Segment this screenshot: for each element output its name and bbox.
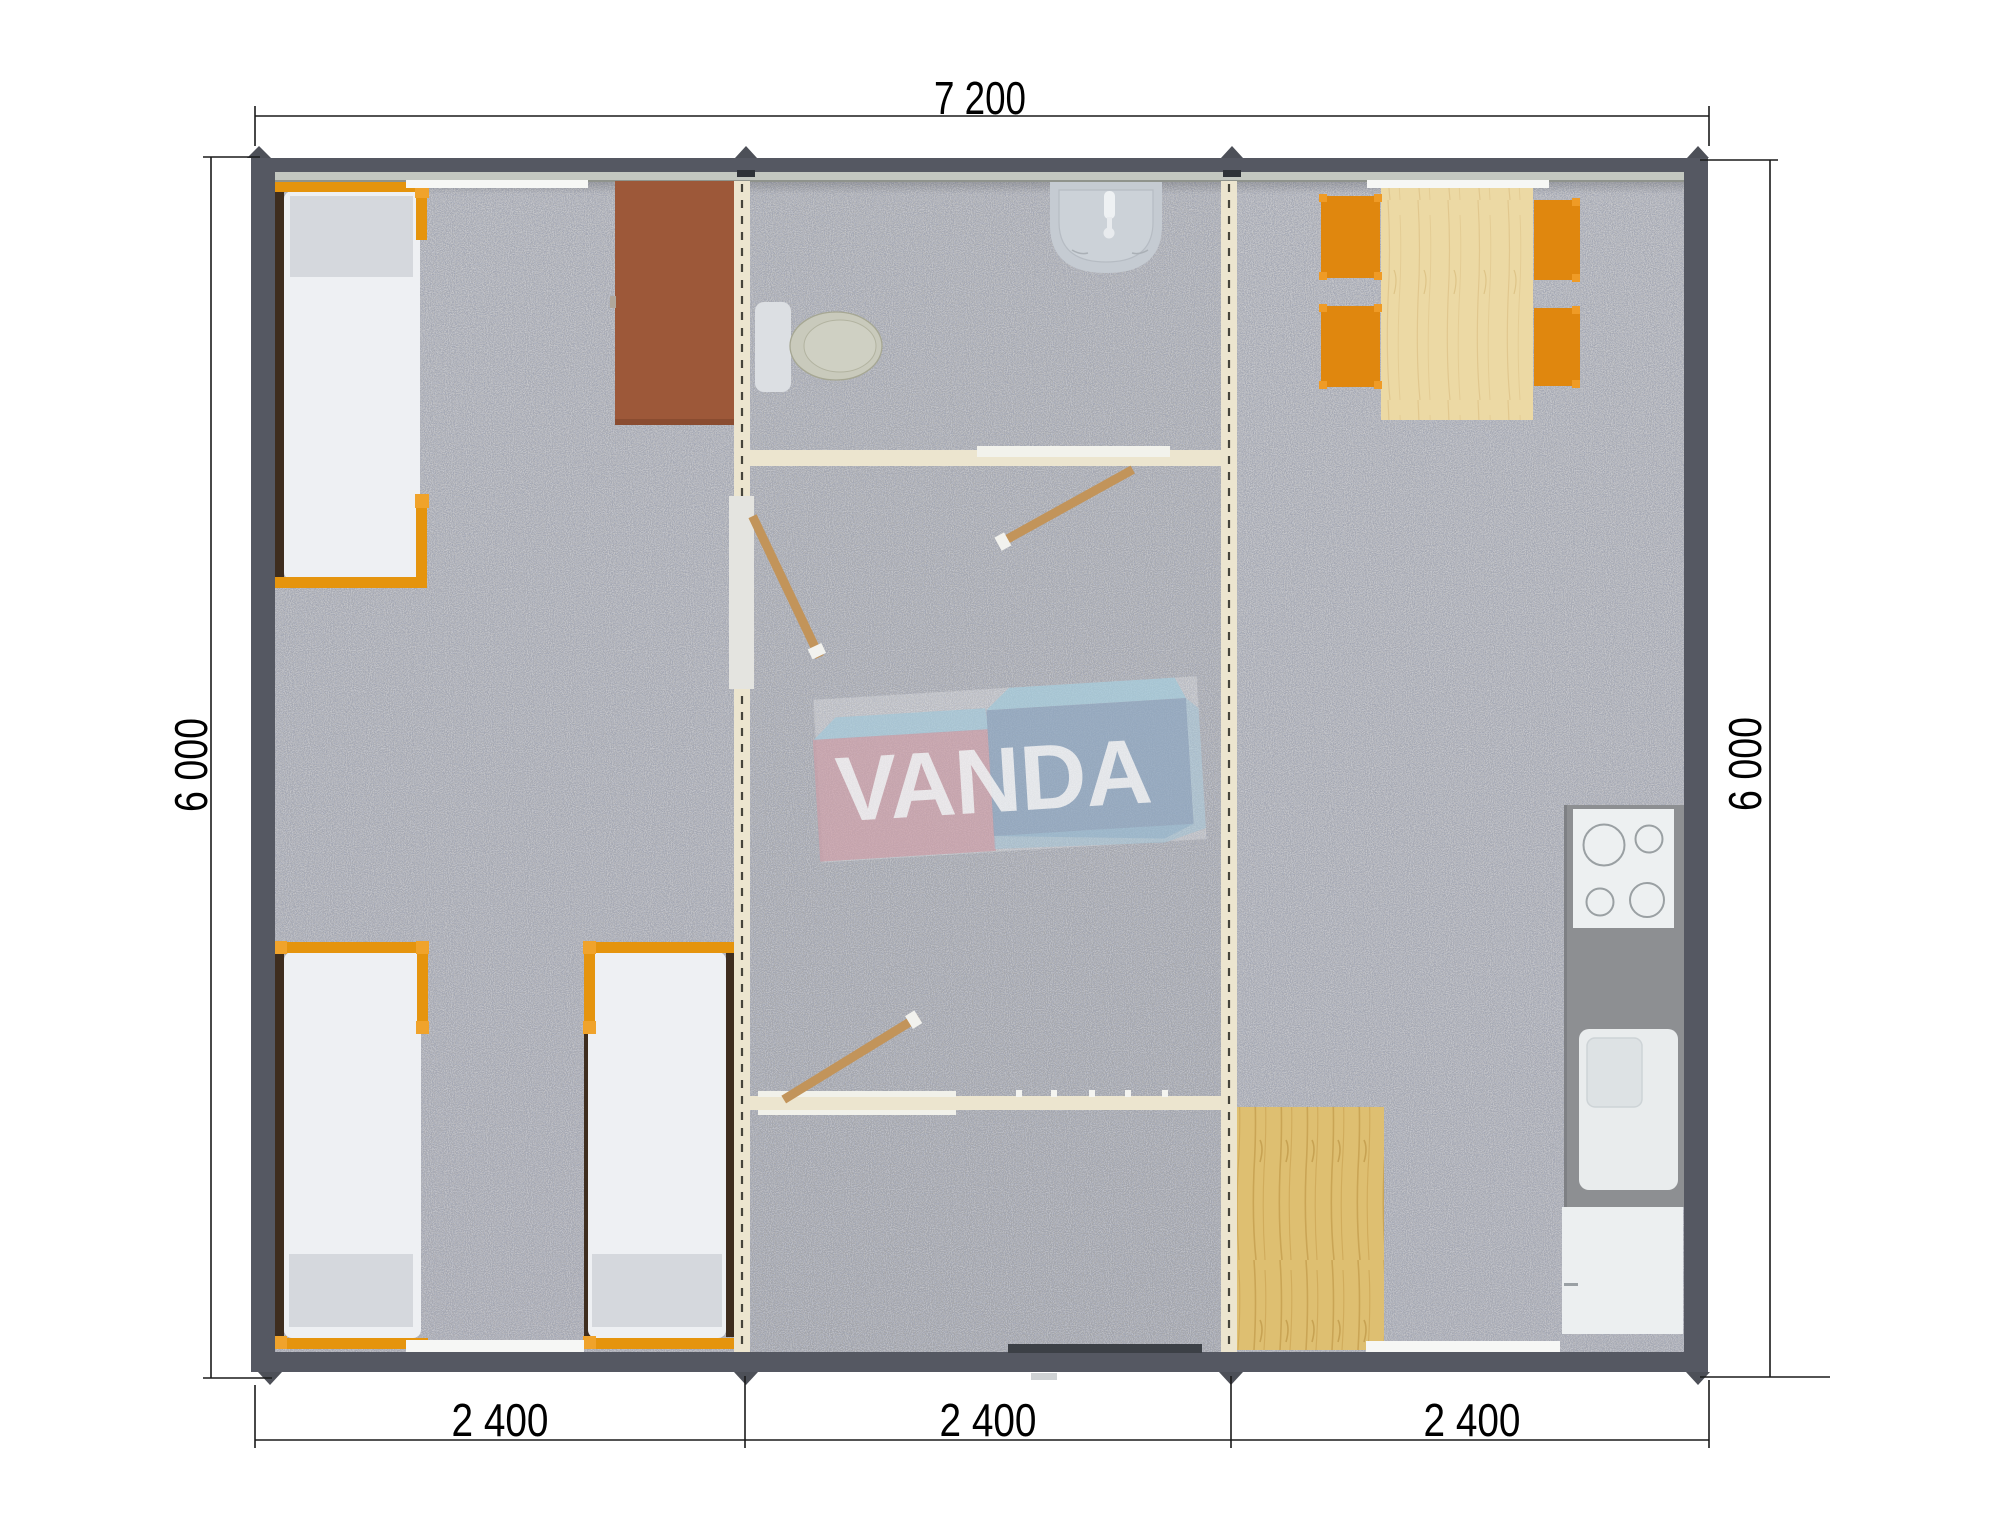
svg-text:2 400: 2 400 [1424,1394,1521,1446]
svg-text:VANDA: VANDA [833,720,1154,841]
svg-text:6 000: 6 000 [165,718,217,812]
svg-text:2 400: 2 400 [452,1394,549,1446]
svg-text:6 000: 6 000 [1719,717,1771,811]
svg-text:7 200: 7 200 [934,72,1026,124]
svg-text:2 400: 2 400 [940,1394,1037,1446]
